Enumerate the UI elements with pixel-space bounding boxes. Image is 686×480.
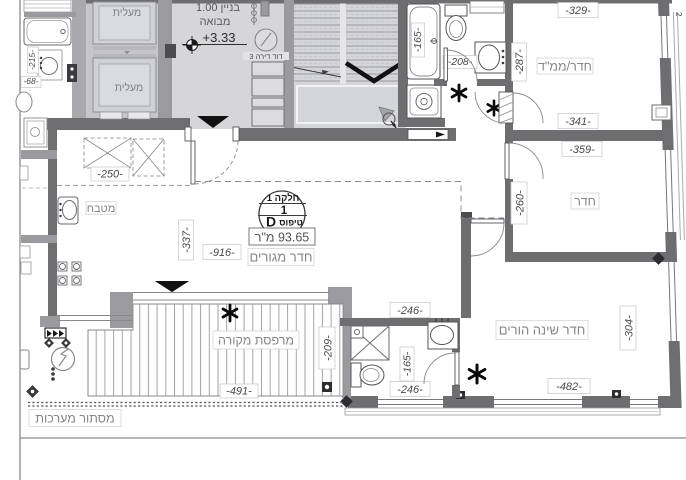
svg-text:מעלית: מעלית (113, 7, 142, 19)
svg-text:-246-: -246- (397, 384, 423, 396)
svg-text:חדר: חדר (574, 195, 596, 209)
svg-text:בניין 1.00: בניין 1.00 (196, 2, 240, 14)
svg-text:מטבח: מטבח (87, 203, 116, 215)
svg-text:-246-: -246- (397, 305, 423, 317)
svg-text:-287-: -287- (514, 49, 526, 75)
svg-text:D: D (266, 214, 276, 230)
svg-text:-250-: -250- (97, 169, 123, 181)
svg-text:-341-: -341- (565, 116, 591, 128)
svg-text:-916-: -916- (209, 247, 235, 259)
svg-text:93.65 מ"ר: 93.65 מ"ר (255, 231, 310, 245)
svg-text:-165-: -165- (412, 27, 424, 52)
svg-text:חלקה 1: חלקה 1 (267, 193, 300, 204)
svg-text:-329-: -329- (565, 5, 591, 17)
svg-text:-209-: -209- (323, 335, 335, 361)
svg-text:-208-: -208- (448, 56, 473, 68)
svg-text:חדר מגורים: חדר מגורים (249, 250, 312, 265)
svg-text:מבואה: מבואה (200, 16, 231, 28)
svg-text:דוד דירה 3: דוד דירה 3 (249, 52, 282, 61)
svg-text:טיפוס: טיפוס (279, 218, 303, 228)
svg-text:חדר/ממ"ד: חדר/ממ"ד (538, 60, 592, 74)
svg-text:+3.33: +3.33 (203, 30, 236, 45)
svg-text:-359-: -359- (569, 144, 595, 156)
svg-text:1: 1 (281, 205, 288, 217)
svg-text:-165-: -165- (402, 351, 414, 376)
svg-text:-260-: -260- (515, 190, 527, 216)
svg-text:-68-: -68- (23, 76, 38, 86)
svg-text:-337-: -337- (181, 227, 193, 253)
svg-text:-482-: -482- (556, 381, 582, 393)
svg-text:2: 2 (674, 12, 683, 17)
svg-text:-304-: -304- (624, 315, 636, 341)
svg-text:מעלית: מעלית (115, 82, 144, 94)
svg-text:חדר שינה הורים: חדר שינה הורים (499, 323, 586, 338)
svg-text:מרפסת מקורה: מרפסת מקורה (218, 334, 294, 348)
svg-text:מסתור מערכות: מסתור מערכות (35, 412, 114, 426)
svg-text:-491-: -491- (226, 386, 252, 398)
svg-text:-215-: -215- (27, 50, 37, 70)
